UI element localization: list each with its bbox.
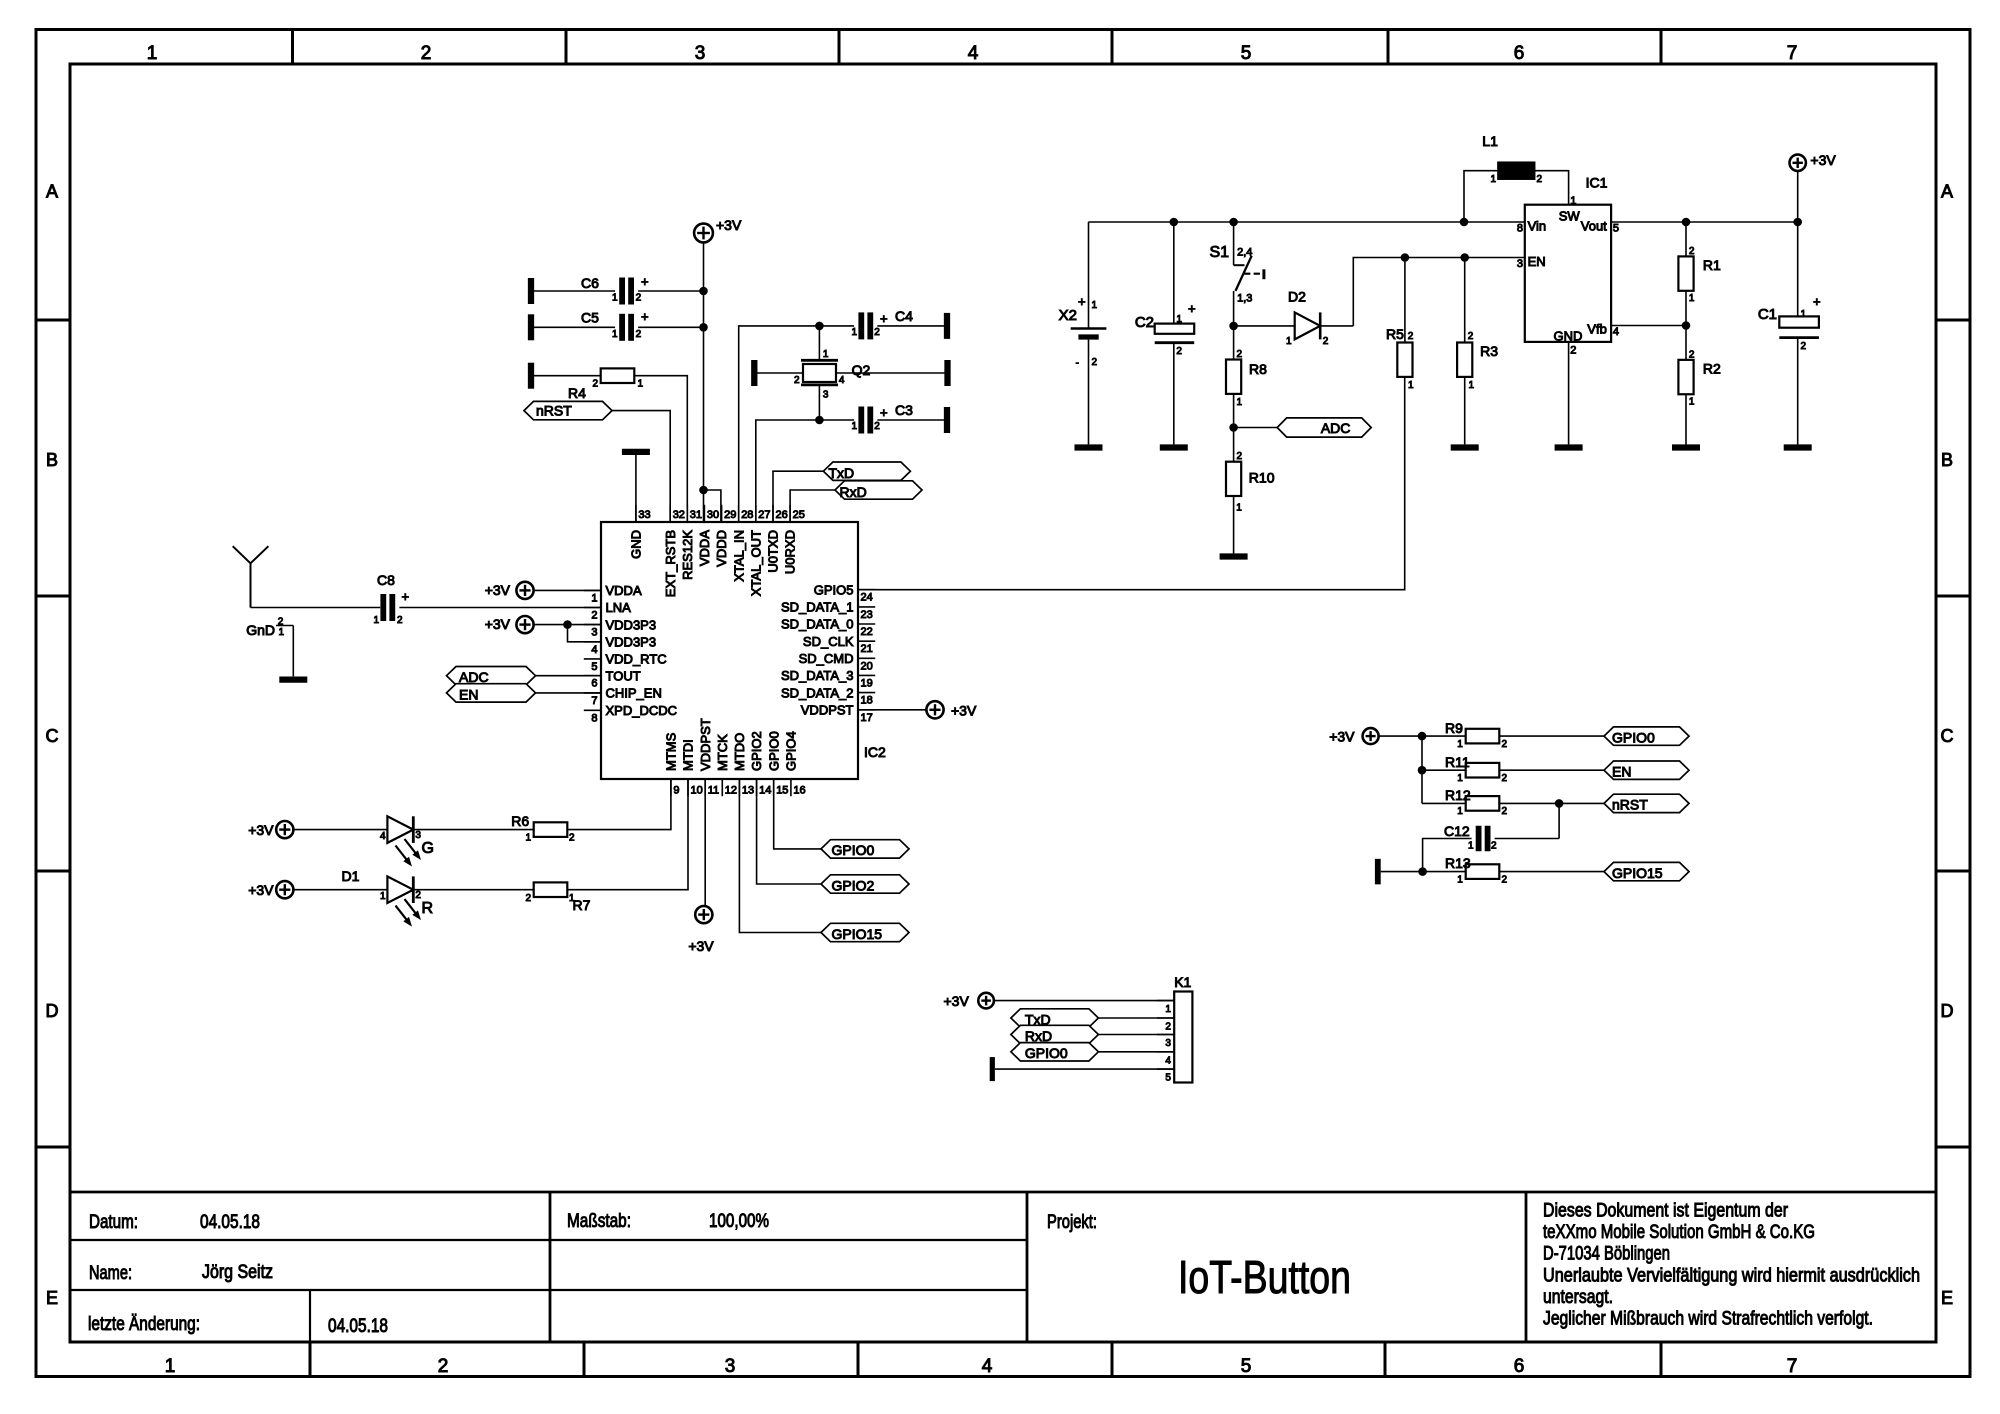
svg-text:1: 1 — [1468, 841, 1474, 852]
svg-text:1: 1 — [279, 627, 285, 638]
svg-text:25: 25 — [793, 509, 805, 521]
svg-text:C6: C6 — [581, 275, 599, 291]
svg-text:SW: SW — [1559, 209, 1581, 224]
svg-text:6: 6 — [1514, 43, 1525, 64]
svg-text:CHIP_EN: CHIP_EN — [606, 686, 662, 701]
svg-text:VDDA: VDDA — [606, 583, 642, 598]
svg-text:6: 6 — [1514, 1356, 1525, 1377]
svg-text:R: R — [422, 900, 434, 917]
svg-text:4: 4 — [591, 644, 597, 656]
svg-text:RxD: RxD — [840, 484, 867, 500]
svg-text:EN: EN — [1612, 764, 1631, 780]
svg-text:2: 2 — [874, 421, 880, 432]
svg-text:D2: D2 — [1288, 289, 1306, 305]
svg-text:1: 1 — [823, 349, 829, 360]
svg-text:GPIO4: GPIO4 — [784, 731, 799, 771]
svg-text:1: 1 — [373, 615, 379, 626]
svg-text:2: 2 — [636, 329, 642, 340]
svg-text:X2: X2 — [1059, 307, 1077, 324]
svg-text:2: 2 — [1408, 331, 1414, 342]
svg-text:5: 5 — [1241, 43, 1252, 64]
svg-text:E: E — [1941, 1288, 1953, 1308]
svg-text:B: B — [46, 450, 58, 470]
svg-text:2: 2 — [1237, 349, 1243, 360]
svg-text:2: 2 — [1570, 345, 1576, 357]
svg-text:GPIO2: GPIO2 — [832, 877, 875, 893]
svg-text:teXXmo Mobile Solution GmbH &: teXXmo Mobile Solution GmbH & Co.KG — [1543, 1222, 1815, 1243]
svg-text:C12: C12 — [1444, 823, 1470, 839]
svg-text:21: 21 — [861, 643, 873, 655]
svg-text:GND: GND — [1554, 328, 1583, 343]
svg-text:15: 15 — [776, 785, 788, 797]
svg-text:8: 8 — [591, 712, 597, 724]
svg-text:GPIO0: GPIO0 — [766, 731, 781, 771]
svg-text:2: 2 — [1323, 336, 1329, 347]
svg-text:19: 19 — [861, 677, 873, 689]
svg-text:2: 2 — [591, 610, 597, 622]
svg-text:1: 1 — [165, 1356, 176, 1377]
svg-text:17: 17 — [861, 712, 873, 724]
svg-text:11: 11 — [708, 785, 719, 797]
svg-text:+3V: +3V — [1810, 152, 1836, 168]
svg-text:Jörg Seitz: Jörg Seitz — [202, 1262, 273, 1283]
svg-text:D1: D1 — [342, 868, 360, 884]
svg-text:R2: R2 — [1703, 360, 1721, 376]
svg-text:SD_DATA_2: SD_DATA_2 — [781, 685, 854, 700]
svg-text:IC1: IC1 — [1586, 175, 1608, 191]
svg-text:2: 2 — [1176, 346, 1182, 357]
svg-text:+3V: +3V — [716, 217, 742, 233]
svg-text:2: 2 — [525, 893, 531, 904]
svg-text:E: E — [46, 1288, 58, 1308]
svg-text:1: 1 — [380, 891, 386, 902]
svg-text:30: 30 — [707, 509, 719, 521]
svg-text:1: 1 — [1801, 309, 1807, 320]
svg-text:1: 1 — [1236, 502, 1242, 513]
svg-text:R13: R13 — [1445, 855, 1471, 871]
svg-text:31: 31 — [690, 509, 702, 521]
svg-text:2: 2 — [1502, 806, 1508, 817]
svg-text:TOUT: TOUT — [606, 668, 641, 683]
svg-text:04.05.18: 04.05.18 — [200, 1212, 260, 1233]
svg-text:+3V: +3V — [485, 582, 511, 598]
svg-text:Jeglicher Mißbrauch wird Straf: Jeglicher Mißbrauch wird Strafrechtlich … — [1543, 1309, 1873, 1330]
svg-text:SD_DATA_0: SD_DATA_0 — [781, 617, 854, 632]
svg-text:3: 3 — [823, 390, 829, 401]
svg-text:1: 1 — [1457, 875, 1463, 886]
svg-text:Vout: Vout — [1581, 218, 1607, 233]
svg-text:SD_DATA_1: SD_DATA_1 — [781, 600, 854, 615]
svg-text:C: C — [46, 726, 59, 746]
svg-text:R7: R7 — [573, 897, 591, 913]
svg-text:B: B — [1941, 450, 1953, 470]
svg-text:EN: EN — [459, 687, 478, 703]
svg-text:Dieses Dokument ist Eigentum d: Dieses Dokument ist Eigentum der — [1543, 1201, 1789, 1222]
svg-text:2: 2 — [1801, 341, 1807, 352]
svg-text:5: 5 — [1165, 1073, 1171, 1084]
svg-text:VDDPST: VDDPST — [698, 718, 713, 771]
svg-text:5: 5 — [1241, 1356, 1252, 1377]
svg-text:1: 1 — [851, 421, 857, 432]
svg-text:ADC: ADC — [1321, 420, 1351, 436]
svg-text:2: 2 — [1689, 246, 1695, 257]
svg-text:2: 2 — [397, 615, 403, 626]
svg-text:Vin: Vin — [1528, 218, 1547, 233]
svg-text:+3V: +3V — [1329, 729, 1355, 745]
svg-text:R9: R9 — [1445, 720, 1463, 736]
svg-text:7: 7 — [1787, 43, 1798, 64]
svg-text:C5: C5 — [581, 310, 599, 326]
svg-text:VDDD: VDDD — [714, 530, 729, 567]
svg-text:6: 6 — [591, 678, 597, 690]
svg-text:9: 9 — [673, 785, 679, 797]
svg-text:GND: GND — [629, 530, 644, 559]
svg-text:4: 4 — [1165, 1055, 1171, 1066]
svg-text:SD_CLK: SD_CLK — [803, 634, 854, 649]
svg-text:IoT-Button: IoT-Button — [1178, 1251, 1351, 1303]
svg-text:1: 1 — [1457, 773, 1463, 784]
svg-text:22: 22 — [861, 626, 873, 638]
svg-text:2: 2 — [592, 379, 598, 390]
svg-text:Projekt:: Projekt: — [1047, 1212, 1097, 1233]
svg-text:1: 1 — [1408, 380, 1414, 391]
svg-text:RxD: RxD — [1025, 1028, 1052, 1044]
svg-text:R3: R3 — [1480, 343, 1498, 359]
svg-text:untersagt.: untersagt. — [1543, 1287, 1613, 1308]
svg-text:ADC: ADC — [459, 669, 489, 685]
svg-text:2: 2 — [569, 833, 575, 844]
svg-text:1: 1 — [1469, 380, 1475, 391]
svg-text:+: + — [1078, 294, 1086, 309]
svg-text:+: + — [1813, 294, 1821, 309]
svg-text:4: 4 — [1613, 326, 1619, 338]
svg-text:33: 33 — [638, 509, 650, 521]
svg-text:R1: R1 — [1703, 257, 1721, 273]
svg-text:D: D — [1941, 1001, 1954, 1021]
svg-text:24: 24 — [861, 592, 873, 604]
svg-text:VDD3P3: VDD3P3 — [606, 617, 657, 632]
svg-text:1: 1 — [1176, 314, 1182, 325]
svg-text:1: 1 — [1490, 174, 1496, 185]
svg-text:2,4: 2,4 — [1237, 247, 1252, 259]
svg-text:K1: K1 — [1174, 974, 1191, 990]
svg-text:3: 3 — [1165, 1038, 1171, 1049]
svg-text:+3V: +3V — [943, 993, 969, 1009]
svg-text:GPIO0: GPIO0 — [1025, 1045, 1068, 1061]
svg-text:7: 7 — [591, 695, 597, 707]
svg-text:1: 1 — [1689, 293, 1695, 304]
svg-text:GnD: GnD — [246, 622, 275, 638]
svg-text:letzte Änderung:: letzte Änderung: — [88, 1314, 200, 1335]
svg-text:3: 3 — [415, 830, 421, 841]
svg-text:TxD: TxD — [829, 465, 855, 481]
svg-text:MTDI: MTDI — [681, 739, 696, 771]
svg-text:4: 4 — [839, 375, 845, 386]
svg-text:SD_CMD: SD_CMD — [799, 651, 854, 666]
svg-text:U0TXD: U0TXD — [766, 530, 781, 573]
svg-text:-: - — [1076, 358, 1079, 369]
svg-text:+3V: +3V — [485, 616, 511, 632]
svg-text:1: 1 — [525, 833, 531, 844]
svg-text:5: 5 — [591, 661, 597, 673]
svg-text:nRST: nRST — [536, 403, 572, 419]
svg-text:1: 1 — [1237, 397, 1243, 408]
svg-text:GPIO15: GPIO15 — [1612, 865, 1663, 881]
svg-text:R6: R6 — [511, 813, 529, 829]
svg-text:2: 2 — [1502, 773, 1508, 784]
svg-text:29: 29 — [724, 509, 736, 521]
svg-text:04.05.18: 04.05.18 — [328, 1316, 388, 1337]
svg-text:2: 2 — [1165, 1022, 1171, 1033]
svg-text:XTAL_OUT: XTAL_OUT — [748, 530, 763, 596]
svg-text:C4: C4 — [895, 308, 913, 324]
svg-text:+3V: +3V — [248, 882, 274, 898]
svg-text:+: + — [880, 405, 888, 420]
svg-text:2: 2 — [415, 890, 421, 901]
svg-text:2: 2 — [1237, 451, 1243, 462]
svg-text:G: G — [422, 840, 434, 857]
svg-text:1: 1 — [569, 893, 575, 904]
svg-text:1: 1 — [1570, 195, 1576, 207]
svg-text:MTCK: MTCK — [715, 734, 730, 771]
svg-text:16: 16 — [793, 785, 805, 797]
svg-text:VDD3P3: VDD3P3 — [606, 635, 657, 650]
svg-text:12: 12 — [725, 785, 737, 797]
svg-text:GPIO5: GPIO5 — [814, 582, 854, 597]
svg-text:C1: C1 — [1758, 306, 1777, 323]
svg-text:3: 3 — [591, 627, 597, 639]
svg-text:3: 3 — [1517, 258, 1523, 270]
svg-text:+3V: +3V — [688, 938, 714, 954]
svg-text:R5: R5 — [1386, 326, 1404, 342]
svg-text:C8: C8 — [377, 572, 395, 588]
svg-text:13: 13 — [742, 785, 754, 797]
svg-text:EN: EN — [1528, 254, 1546, 269]
svg-text:+3V: +3V — [248, 822, 274, 838]
svg-text:C: C — [1941, 726, 1954, 746]
svg-text:A: A — [1941, 182, 1953, 202]
svg-text:GPIO0: GPIO0 — [1612, 729, 1655, 745]
svg-text:2: 2 — [636, 293, 642, 304]
svg-text:4: 4 — [968, 43, 979, 64]
svg-text:Name:: Name: — [89, 1263, 132, 1284]
svg-text:18: 18 — [861, 695, 873, 707]
svg-text:IC2: IC2 — [864, 744, 886, 760]
svg-text:3: 3 — [725, 1356, 736, 1377]
svg-text:26: 26 — [776, 509, 788, 521]
svg-text:2: 2 — [438, 1356, 449, 1377]
svg-text:A: A — [46, 182, 58, 202]
svg-text:R10: R10 — [1249, 469, 1275, 485]
svg-text:4: 4 — [982, 1356, 993, 1377]
svg-text:2: 2 — [1502, 875, 1508, 886]
svg-text:LNA: LNA — [606, 600, 632, 615]
svg-text:14: 14 — [759, 785, 771, 797]
svg-text:VDD_RTC: VDD_RTC — [606, 652, 667, 667]
svg-text:EXT_RSTB: EXT_RSTB — [663, 530, 678, 597]
svg-text:2: 2 — [1468, 331, 1474, 342]
svg-text:23: 23 — [861, 609, 873, 621]
svg-text:2: 2 — [1537, 174, 1543, 185]
svg-text:1: 1 — [612, 329, 618, 340]
svg-text:R11: R11 — [1445, 754, 1470, 770]
svg-text:1: 1 — [1092, 300, 1098, 311]
svg-text:+: + — [880, 311, 888, 326]
svg-text:1: 1 — [638, 379, 644, 390]
svg-text:XTAL_IN: XTAL_IN — [731, 530, 746, 582]
svg-text:RES12K: RES12K — [680, 530, 695, 580]
svg-text:2: 2 — [1491, 841, 1497, 852]
svg-text:U0RXD: U0RXD — [783, 530, 798, 574]
svg-text:SD_DATA_3: SD_DATA_3 — [781, 668, 854, 683]
svg-text:+3V: +3V — [951, 703, 977, 719]
svg-text:1: 1 — [1286, 336, 1292, 347]
svg-text:R12: R12 — [1445, 787, 1471, 803]
svg-text:2: 2 — [1092, 357, 1098, 368]
svg-text:2: 2 — [1689, 349, 1695, 360]
svg-text:4: 4 — [380, 831, 386, 842]
svg-text:VDDPST: VDDPST — [801, 703, 854, 718]
svg-text:XPD_DCDC: XPD_DCDC — [606, 703, 678, 718]
svg-text:27: 27 — [758, 509, 770, 521]
svg-text:7: 7 — [1787, 1356, 1798, 1377]
svg-text:GPIO2: GPIO2 — [749, 731, 764, 771]
svg-text:3: 3 — [695, 43, 706, 64]
svg-text:nRST: nRST — [1612, 797, 1648, 813]
svg-text:2: 2 — [421, 43, 432, 64]
svg-text:D: D — [46, 1001, 59, 1021]
svg-text:R4: R4 — [568, 385, 586, 401]
svg-text:1: 1 — [1457, 806, 1463, 817]
svg-text:2: 2 — [874, 327, 880, 338]
svg-text:L1: L1 — [1482, 133, 1498, 149]
svg-text:Unerlaubte Vervielfältigung wi: Unerlaubte Vervielfältigung wird hiermit… — [1543, 1265, 1920, 1286]
svg-text:GPIO0: GPIO0 — [832, 842, 875, 858]
svg-text:S1: S1 — [1210, 244, 1230, 261]
svg-text:8: 8 — [1517, 223, 1523, 235]
svg-text:MTDO: MTDO — [732, 733, 747, 771]
svg-text:1: 1 — [612, 293, 618, 304]
svg-text:5: 5 — [1613, 223, 1619, 235]
svg-text:1: 1 — [147, 43, 158, 64]
svg-text:+: + — [641, 309, 649, 324]
svg-text:28: 28 — [741, 509, 753, 521]
svg-text:Maßstab:: Maßstab: — [567, 1211, 631, 1232]
svg-text:1: 1 — [1457, 739, 1463, 750]
svg-text:1: 1 — [851, 327, 857, 338]
svg-text:D-71034 Böblingen: D-71034 Böblingen — [1543, 1244, 1670, 1265]
svg-text:1: 1 — [1689, 396, 1695, 407]
svg-text:1,3: 1,3 — [1237, 292, 1252, 304]
svg-text:MTMS: MTMS — [664, 732, 679, 771]
svg-text:Q2: Q2 — [852, 362, 871, 378]
svg-text:20: 20 — [861, 660, 873, 672]
svg-text:C2: C2 — [1135, 314, 1154, 331]
svg-text:GPIO15: GPIO15 — [832, 926, 883, 942]
svg-text:1: 1 — [591, 592, 597, 604]
svg-text:C3: C3 — [895, 402, 913, 418]
svg-text:2: 2 — [1502, 739, 1508, 750]
svg-text:Vfb: Vfb — [1587, 322, 1607, 337]
svg-text:1: 1 — [1165, 1004, 1171, 1015]
svg-text:VDDA: VDDA — [697, 530, 712, 566]
svg-text:Datum:: Datum: — [89, 1212, 138, 1233]
svg-text:32: 32 — [673, 509, 685, 521]
svg-text:10: 10 — [691, 785, 703, 797]
svg-text:2: 2 — [794, 375, 800, 386]
svg-text:+: + — [1188, 301, 1196, 316]
svg-text:R8: R8 — [1249, 361, 1267, 377]
svg-text:+: + — [641, 274, 649, 289]
svg-text:100,00%: 100,00% — [709, 1211, 769, 1232]
svg-text:+: + — [402, 589, 410, 604]
